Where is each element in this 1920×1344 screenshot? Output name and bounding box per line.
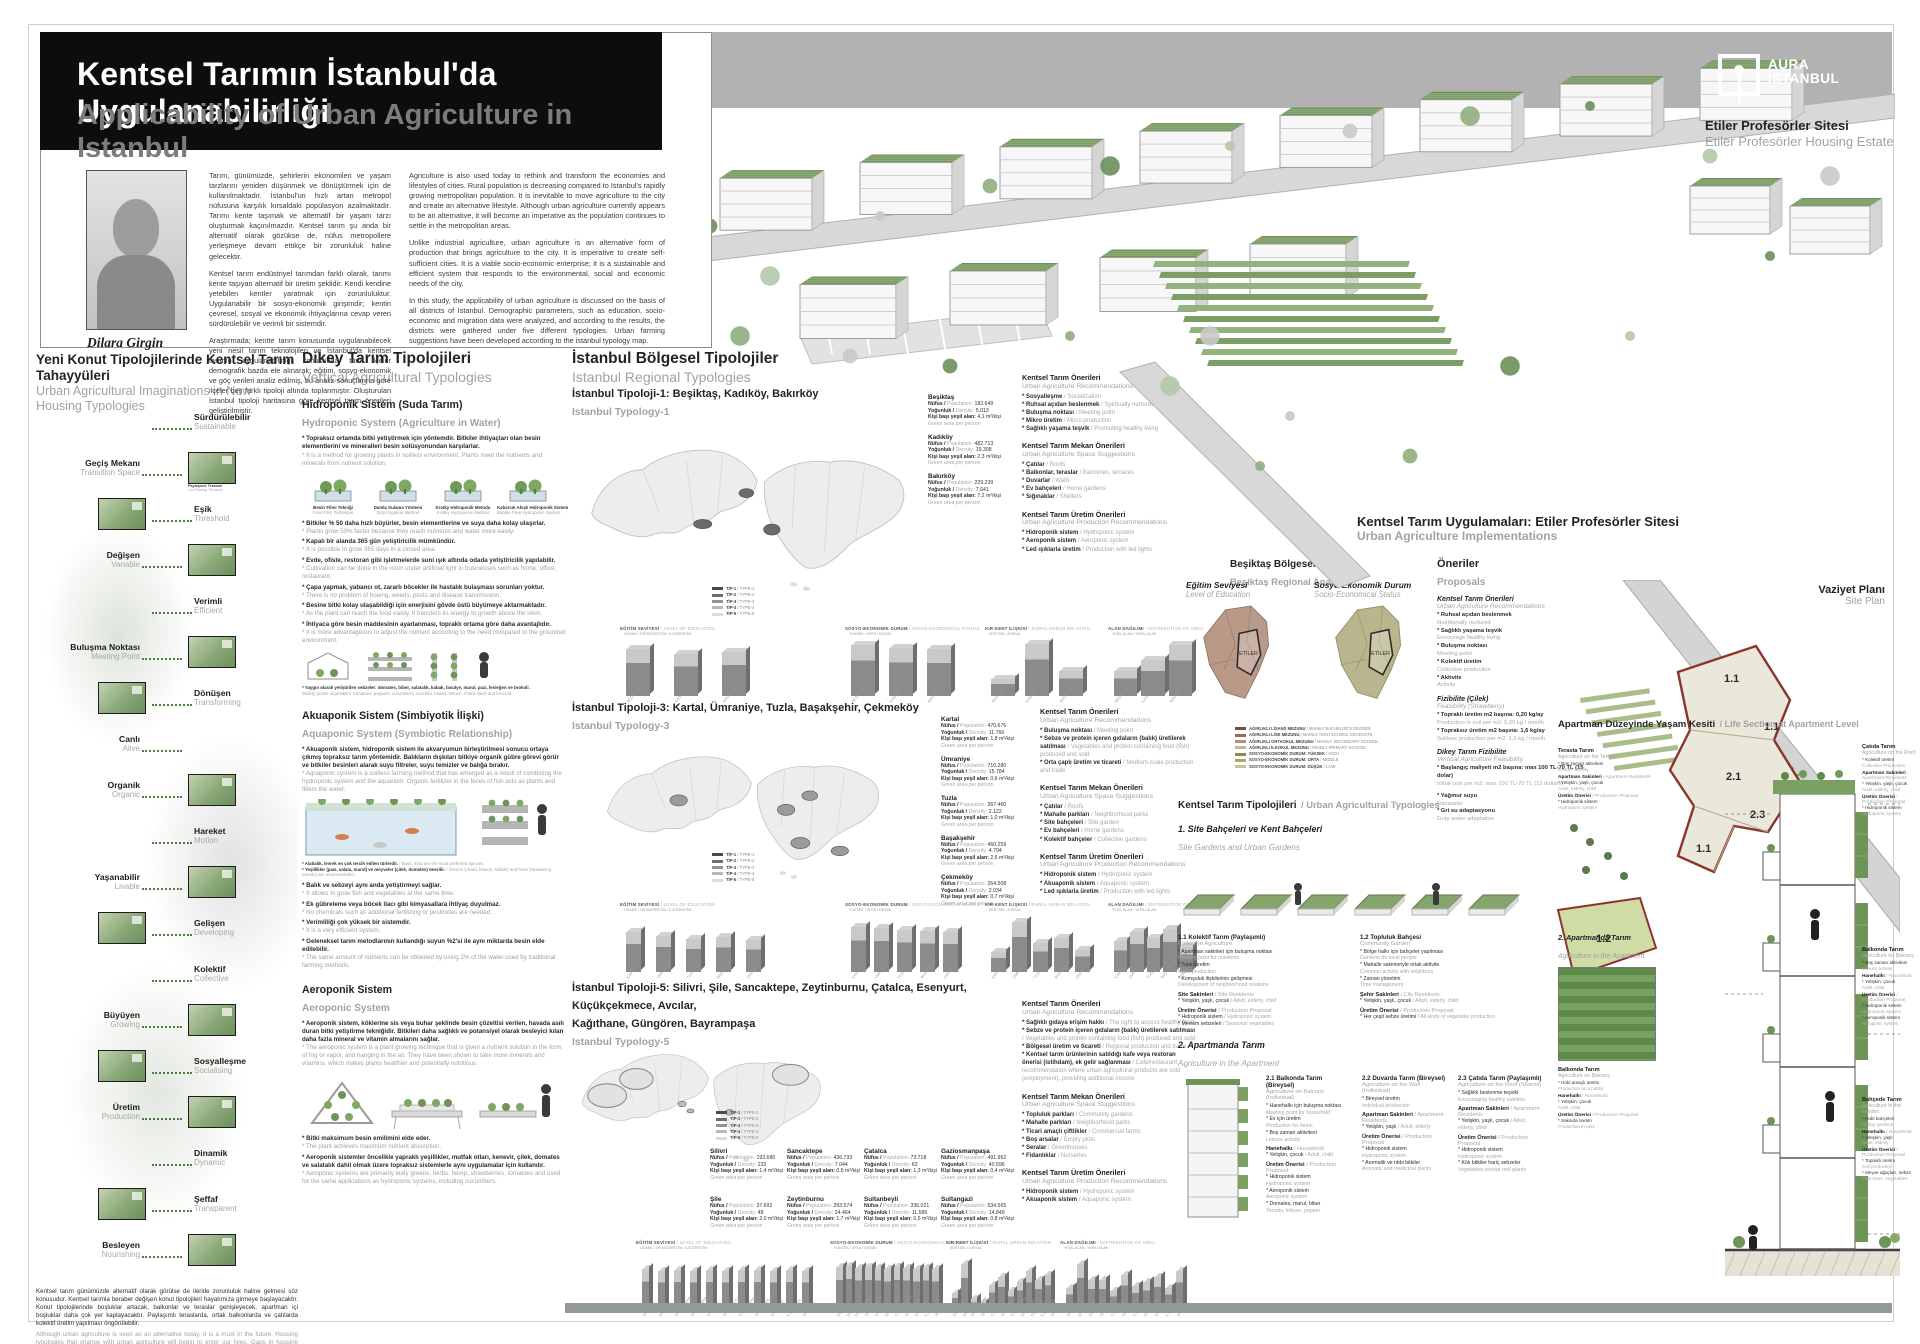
bottom-rule [565, 1303, 1892, 1313]
life-group-title-en: Agriculture on the Terrace [1558, 754, 1718, 760]
life-line: * Saksıda üretimProduction in pots [1558, 1118, 1718, 1130]
bar-label: K.ÇEKMECE [786, 1315, 802, 1319]
section1-title: 1. Site Bahçeleri ve Kent BahçeleriSite … [1178, 819, 1534, 855]
greenhouse-caption: * Yaygın olarak yetiştirilen sebzeler: d… [302, 685, 566, 696]
rec-item: * Hidroponik sistem / Hydroponic system [1022, 1188, 1197, 1196]
chart-bars [946, 1252, 1054, 1310]
chart-legend: YEŞİL ALAN / YAPILI ALAN [1112, 632, 1196, 636]
hydroponic-icon: Besin Filmi TekniğiFood Film Technique [302, 473, 364, 516]
hydroponic-icon: Damla Sulama YöntemiDrip Irrigation Meth… [367, 473, 429, 516]
block-item: * Toplu üretimMass production [1178, 962, 1346, 976]
chart-legend: YÜKSEK / ORTA / DÜŞÜK [849, 908, 973, 912]
logo-line2: İSTANBUL [1768, 71, 1839, 86]
block-title-en: Collective Agriculture [1178, 941, 1346, 947]
district-stat-block: SultangaziNüfus / Population: 534.565Yoğ… [941, 1196, 1027, 1229]
rec-item: * Akuaponik sistem / Aquaponic system [1040, 880, 1198, 888]
production-item: * Hidroponik sistemHydroponic system [1266, 1174, 1352, 1188]
bar-label: SULTANBEYLİ [884, 1315, 894, 1319]
detail-title: Kentsel Tarım Tipolojileri / Urban Agric… [1178, 795, 1534, 813]
life-line: * Meyve ağaçları, sebzeFruit trees, vege… [1862, 1170, 1916, 1182]
dotted-leader [152, 980, 192, 982]
life-group-title-en: Agriculture in the Garden [1862, 1103, 1916, 1115]
section2-blocks: 2.1 Balkonda Tarım (Bireysel)Agriculture… [1266, 1075, 1544, 1225]
typology-recommendations: Kentsel Tarım ÖnerileriUrban Agriculture… [1022, 374, 1197, 563]
rec-group: Kentsel Tarım Mekan ÖnerileriUrban Agric… [1040, 784, 1198, 843]
dotted-leader [142, 888, 182, 890]
bar-label: SİLİVRİ [952, 1315, 962, 1319]
life-label-group: Balkonda TarımAgriculture on Balcony* Bo… [1862, 947, 1916, 1027]
production-item: * Hidroponik sistemHydroponic system [1362, 1146, 1448, 1160]
concept-photo [98, 682, 146, 714]
map-legend-item: TİP-5 / TYPE-5 [712, 611, 754, 617]
rec-group: Kentsel Tarım Üretim ÖnerileriUrban Agri… [1022, 511, 1197, 554]
author-name: Dilara Girgin [87, 335, 163, 351]
district-stats: ÇatalcaNüfus / Population: 73.718Yoğunlu… [864, 1148, 950, 1188]
dotted-leader [152, 428, 192, 430]
bullet: * Geleneksel tarım metodlarının kullandı… [302, 938, 566, 970]
section2-title: 2. Apartmanda TarımAgriculture in the Ap… [1178, 1035, 1534, 1071]
district-stats: GaziosmanpaşaNüfus / Population: 491.962… [941, 1148, 1027, 1188]
rec-item: * Hidroponik sistem / Hydroponic system [1040, 871, 1198, 879]
implementations-title-tr: Kentsel Tarım Uygulamaları: Etiler Profe… [1357, 514, 1687, 529]
bar-label: SANCAKTEPE [674, 1315, 690, 1319]
aquaponic-caption: * Yeşillikler (pazı, salata, marul) ve m… [302, 867, 566, 878]
life-section-header: Apartman Düzeyinde Yaşam Kesiti / Life S… [1558, 714, 1908, 732]
chart-bar-labels: SİLİVRİŞİLESANCAKTEPEZEYTİNBURNUÇATALCAS… [1060, 1315, 1192, 1319]
concept-row: ŞeffafTransparent [36, 1186, 298, 1232]
rec-group-title-tr: Kentsel Tarım Mekan Önerileri [1022, 1093, 1197, 1102]
block-item: * Sağlıklı beslenme teşvikiEncouraging h… [1458, 1090, 1544, 1104]
intro-paragraph-en: In this study, the applicability of urba… [409, 296, 665, 346]
life-label-group: Balkonda TarımAgriculture on Balcony* Ho… [1558, 1067, 1718, 1130]
bar-label: ŞİLE [962, 1315, 970, 1319]
concept-label: DinamikDynamic [194, 1148, 298, 1167]
chart-title: EĞİTİM SEVİYESİ / LEVEL OF EDUCATION [636, 1240, 822, 1245]
rec-item: * Kentsel tarım ürünlerinin satıldığı ka… [1022, 1051, 1197, 1083]
hydroponic-icon: Kratky Hidroponik MetoduKratky Hydroponi… [432, 473, 494, 516]
bar-label: K.ÇEKMECE [924, 1315, 934, 1319]
dotted-leader [152, 934, 192, 936]
dotted-leader [152, 612, 192, 614]
life-line-header: Üretim Önerisi / Production Proposal [1862, 1148, 1916, 1158]
concept-photo [188, 866, 236, 898]
istanbul-typology-map [575, 424, 925, 606]
dotted-leader [152, 704, 192, 706]
bar-label: SULTANGAZİ [1020, 1315, 1030, 1319]
production-header: Üretim Önerisi / Production Proposal [1266, 1162, 1352, 1174]
section2-wrap: 2.1 Balkonda Tarım (Bireysel)Agriculture… [1178, 1075, 1534, 1225]
life-line: * Hidroponik sistemHydroponic system [1862, 1003, 1916, 1015]
production-item: * Aeroponik sistemAeroponic system [1266, 1188, 1352, 1202]
concept-photo [188, 774, 236, 806]
district-stat-block: ŞileNüfus / Population: 37.692Yoğunluk /… [710, 1196, 796, 1229]
concept-label: ÜretimProduction [36, 1102, 140, 1121]
block-title-en: Agriculture on Balcony (Individual) [1266, 1089, 1352, 1101]
bullet: * Bitkiler % 50 daha hızlı büyürler, bes… [302, 520, 566, 536]
district-stat-block: KadıköyNüfus / Population: 482.713Yoğunl… [928, 434, 1014, 467]
block-title-tr: 2.3 Çatıda Tarım (Paylaşımlı) [1458, 1075, 1544, 1082]
concept-row: DönüşenTransforming [36, 680, 298, 726]
intro-paragraph-en: Unlike industrial agriculture, urban agr… [409, 238, 665, 288]
map-legend: TİP-1 / TYPE-1TİP-2 / TYPE-2TİP-3 / TYPE… [712, 586, 754, 617]
life-label-group: Bahçede TarımAgriculture in the Garden* … [1862, 1097, 1916, 1183]
rec-item: * Boş arsalar / Empty plots [1022, 1136, 1197, 1144]
rec-item: * Sosyalleşme / Socialization [1022, 393, 1197, 401]
svg-text:ETİLER: ETİLER [1239, 650, 1258, 657]
concept-row: VerimliEfficient [36, 588, 298, 634]
district-stats: ZeytinburnuNüfus / Population: 293.574Yo… [787, 1196, 873, 1236]
chart-legend: LİSANS / ORTAÖĞRETİM / İLKÖĞRETİM [624, 908, 790, 912]
dotted-leader [152, 520, 192, 522]
chart-bars [1060, 1252, 1192, 1310]
rec-group-title-en: Urban Agriculture Recommendations [1040, 717, 1198, 725]
life-line: * Aeroponik sistemAeroponic system [1862, 1015, 1916, 1027]
intro-paragraph-tr: Tarım, günümüzde, şehirlerin ekonomileri… [209, 171, 391, 262]
bar-label: K.ÇEKMECE [1165, 1315, 1176, 1319]
concept-photo [188, 1234, 236, 1266]
rec-group: Kentsel Tarım Mekan ÖnerileriUrban Agric… [1022, 442, 1197, 501]
rec-group-title-en: Urban Agriculture Production Recommendat… [1040, 861, 1198, 869]
chart-group: EĞİTİM SEVİYESİ / LEVEL OF EDUCATIONLİSA… [620, 626, 790, 705]
block-title-en: Agriculture on the Wall (Individual) [1362, 1082, 1448, 1094]
residents-item: * Yetişkin, yaşlı, çocuk / Adult, elderl… [1360, 998, 1528, 1005]
production-item: * Domates, marul, biberTomato, lettuce, … [1266, 1201, 1352, 1215]
rec-item: * Aeroponik sistem / Aeroponic system [1022, 537, 1197, 545]
residents-header: Apartman Sakinleri / Apartment Residents [1458, 1106, 1544, 1118]
rec-item: * Ticari amaçlı çiftlikler / Commercial … [1022, 1128, 1197, 1136]
block-item: * Bireysel üretimIndividual production [1362, 1096, 1448, 1110]
dotted-leader [142, 658, 182, 660]
bar-label: ÇATALCA [1110, 1315, 1121, 1319]
rec-item: * Sebze ve protein içeren gıdaların (bal… [1040, 735, 1198, 759]
bar-label: G.OSMANPAŞA [738, 1315, 754, 1319]
map-legend: TİP-1 / TYPE-1TİP-2 / TYPE-2TİP-3 / TYPE… [712, 852, 754, 883]
life-line: * Boş zaman aktivitesiLeisure activity [1558, 761, 1718, 773]
production-item: * Mevsim sebzeleri / Seasonal vegetables [1178, 1021, 1346, 1028]
bar-label: TUZLA [1146, 977, 1160, 981]
residents-item: * Yetişkin, yaşlı / Adult, elderly [1362, 1124, 1448, 1131]
rec-group-title-tr: Kentsel Tarım Mekan Önerileri [1040, 784, 1198, 793]
spacer [1862, 827, 1916, 947]
rec-item: * Balkonlar, teraslar / Balconies, terra… [1022, 469, 1197, 477]
rec-item: * Mikro üretim / Micro production [1022, 417, 1197, 425]
life-line-header: Üretim Önerisi / Production Proposal [1862, 993, 1916, 1003]
district-stats: ŞileNüfus / Population: 37.692Yoğunluk /… [710, 1196, 796, 1236]
regional-title-en: Istanbul Regional Typologies [572, 369, 778, 386]
concept-row: YaşanabilirLivable [36, 864, 298, 910]
rec-group-title-en: Urban Agriculture Recommendations [1022, 383, 1197, 391]
bar-label: ÇATALCA [706, 1315, 722, 1319]
author-photo [86, 170, 187, 330]
district-stat-block: SancaktepeNüfus / Population: 436.733Yoğ… [787, 1148, 873, 1181]
bar-label: G.OSMANPAŞA [894, 1315, 904, 1319]
site-name-en: Etiler Profesörler Housing Estate [1705, 134, 1894, 150]
bullet: * Balık ve sebzeyi aynı anda yetiştirmey… [302, 882, 566, 898]
concept-label: BesleyenNourishing [36, 1240, 140, 1259]
system-name: Akuaponik Sistem (Simbiyotik İlişki)Aqua… [302, 706, 566, 742]
bullet: * Bitki maksimum besin emilimini elde ed… [302, 1135, 566, 1151]
life-line: * Yetişkin, çocukAdult, child [1558, 1099, 1718, 1111]
life-line: * Hobi amaçlı üretimProduction as a hobb… [1558, 1080, 1718, 1092]
bar-label: SULTANGAZİ [1143, 1315, 1154, 1319]
chart-legend: KENTSEL / KIRSAL [989, 908, 1097, 912]
analysis-legend-item: SOSYO-EKONOMİK DURUM: DÜŞÜK / LOW [1235, 764, 1425, 770]
concept-label: ŞeffafTransparent [194, 1194, 298, 1213]
implementations-header: Kentsel Tarım Uygulamaları: Etiler Profe… [1357, 514, 1687, 543]
bar-label: ESENYURT [770, 1315, 786, 1319]
bar-label: SULTANGAZİ [754, 1315, 770, 1319]
rec-group: Kentsel Tarım ÖnerileriUrban Agriculture… [1022, 374, 1197, 433]
logo-line1: AURA [1768, 57, 1809, 72]
dotted-leader [142, 1118, 182, 1120]
apartment-illustration [1178, 1075, 1256, 1225]
typology-block: 1.1 Kolektif Tarım (Paylaşımlı)Collectiv… [1178, 934, 1346, 1027]
bar-label: KADIKÖY [1141, 701, 1168, 705]
bar-label: ÇEKMEKÖY [1075, 977, 1096, 981]
bar-label: ÇATALCA [990, 1315, 1000, 1319]
bar-label: G.OSMANPAŞA [1132, 1315, 1143, 1319]
system-bullets: * Balık ve sebzeyi aynı anda yetiştirmey… [302, 882, 566, 970]
block-item: * Hanehalkı için buluşma noktasıMeeting … [1266, 1103, 1352, 1117]
concept-row: ÜretimProduction [36, 1094, 298, 1140]
concept-row: CanlıAlive [36, 726, 298, 772]
regional-section: İstanbul Bölgesel Tipolojiler Istanbul R… [572, 350, 778, 385]
chart-group: SOSYO-EKONOMİK DURUM / SOCIO-ECONOMICAL … [845, 902, 973, 981]
concept-row: Geçiş MekanıTransition SpacePaylaşımlı T… [36, 450, 298, 496]
intro-paragraph-tr: Araştırmada; kentte tarım konusunda uygu… [209, 336, 391, 417]
concept-label: VerimliEfficient [194, 596, 298, 615]
typology-block: 2.2 Duvarda Tarım (Bireysel)Agriculture … [1362, 1075, 1448, 1225]
concept-photo [188, 1004, 236, 1036]
concept-label: DeğişenVariable [36, 550, 140, 569]
rec-group-title-tr: Kentsel Tarım Önerileri [1022, 374, 1197, 383]
intro-paragraph-en: Agriculture is also used today to rethin… [409, 171, 665, 231]
life-line: * Hobi bahçeleriHobby gardens [1862, 1116, 1916, 1128]
poster-title-en: Applicability of Urban Agriculture in Is… [77, 99, 662, 165]
bar-label: BEŞİKTAŞ [1114, 701, 1141, 705]
chart-bar-labels: BEŞİKTAŞKADIKÖYBAKIRKÖY [1108, 701, 1196, 705]
rec-group-title-tr: Kentsel Tarım Üretim Önerileri [1022, 511, 1197, 520]
block-item: * Zaman yönetimiTime management [1360, 976, 1528, 990]
concept-row: DinamikDynamic [36, 1140, 298, 1186]
life-labels-right: Çatıda TarımAgriculture on the Roof* Kol… [1862, 744, 1916, 1192]
life-line-header: Apartman Sakinleri / Apartment Residents [1862, 771, 1916, 781]
bullet: * İhtiyaca göre besin maddesinin ayarlan… [302, 621, 566, 645]
district-stats: SultanbeyliNüfus / Population: 336.021Yo… [864, 1196, 950, 1236]
dotted-leader [142, 750, 182, 752]
chart-group: EĞİTİM SEVİYESİ / LEVEL OF EDUCATIONLİSA… [620, 902, 790, 981]
site-gardens-illustration [1178, 859, 1534, 929]
chart-title: ALAN DAĞILIMI / DISTRIBUTION OF AREA [1060, 1240, 1192, 1245]
concept-photo [188, 544, 236, 576]
bar-label: AVCILAR [802, 1315, 818, 1319]
dotted-leader [152, 842, 192, 844]
chart-bar-labels: SİLİVRİŞİLESANCAKTEPEZEYTİNBURNUÇATALCAS… [636, 1315, 822, 1319]
site-name-tr: Etiler Profesörler Sitesi [1705, 118, 1894, 134]
concept-row: Buluşma NoktasıMeeting Point [36, 634, 298, 680]
chart-legend: KENTSEL / KIRSAL [989, 632, 1097, 636]
chart-legend: YÜKSEK / ORTA / DÜŞÜK [849, 632, 973, 636]
concept-row: KolektifCollective [36, 956, 298, 1002]
title-block: Kentsel Tarımın İstanbul'da Uygulanabili… [40, 32, 662, 150]
bar-label: ESENYURT [914, 1315, 924, 1319]
rec-item: * Led ışıklarla üretim / Production with… [1040, 888, 1198, 896]
rec-item: * Çatılar / Roofs [1022, 461, 1197, 469]
chart-title: EĞİTİM SEVİYESİ / LEVEL OF EDUCATION [620, 902, 790, 907]
bar-label: SİLİVRİ [642, 1315, 658, 1319]
rec-group: Kentsel Tarım Üretim ÖnerileriUrban Agri… [1040, 853, 1198, 896]
rec-item: * Ev bahçeleri / Home gardens [1040, 827, 1198, 835]
concept-row: BüyüyenGrowing [36, 1002, 298, 1048]
implementations-title-en: Urban Agriculture Implementations [1357, 529, 1687, 543]
chart-group: KIR-KENT İLİŞKİSİ / RURAL-URBAN RELATION… [985, 902, 1097, 981]
bar-label: K.ÇEKMECE [1040, 1315, 1050, 1319]
concept-photo [98, 1188, 146, 1220]
bar-label: AVCILAR [1050, 1315, 1060, 1319]
system-description: * Topraksız ortamda bitki yetiştirmek iç… [302, 435, 566, 467]
imaginations-section: Yeni Konut Tipolojilerinde Kentsel Tarım… [36, 352, 298, 1340]
typology-block: 2.3 Çatıda Tarım (Paylaşımlı)Agriculture… [1458, 1075, 1544, 1225]
rec-item: * Kolektif bahçeler / Collective gardens [1040, 836, 1198, 844]
intro-text-english: Agriculture is also used today to rethin… [409, 171, 665, 353]
rec-group-title-tr: Kentsel Tarım Mekan Önerileri [1022, 442, 1197, 451]
bullet: * Aeroponik sistemler öncelikle yapraklı… [302, 1154, 566, 1186]
dotted-leader [142, 1026, 182, 1028]
chart-bar-labels: SİLİVRİŞİLESANCAKTEPEZEYTİNBURNUÇATALCAS… [946, 1315, 1054, 1319]
system-name: Aeroponik SistemAeroponic System [302, 980, 566, 1016]
rec-item: * Led ışıklarla üretim / Production with… [1022, 546, 1197, 554]
typology-block: 2.1 Balkonda Tarım (Bireysel)Agriculture… [1266, 1075, 1352, 1225]
chart-title: ALAN DAĞILIMI / DISTRIBUTION OF AREA [1108, 626, 1196, 631]
section1-blocks: 1.1 Kolektif Tarım (Paylaşımlı)Collectiv… [1178, 934, 1534, 1027]
district-stat-block: SultanbeyliNüfus / Population: 336.021Yo… [864, 1196, 950, 1229]
rec-group-title-tr: Kentsel Tarım Önerileri [1022, 1000, 1197, 1009]
bullet: * Verimliliği çok yüksek bir sistemdir.*… [302, 919, 566, 935]
concept-label: DönüşenTransforming [194, 688, 298, 707]
bar-label: SANCAKTEPE [854, 1315, 864, 1319]
life-line: * Yetişkin, yaşlı, çocukAdult, elderly, … [1862, 781, 1916, 793]
district-stat-block: KartalNüfus / Population: 470.676Yoğunlu… [941, 716, 1027, 749]
rec-group-title-en: Urban Agriculture Recommendations [1022, 1009, 1197, 1017]
intro-text-turkish: Tarım, günümüzde, şehirlerin ekonomileri… [209, 171, 391, 423]
dotted-leader [152, 1210, 192, 1212]
spacer [1862, 1037, 1916, 1097]
district-stat-block: ÜmraniyeNüfus / Population: 710.280Yoğun… [941, 756, 1027, 789]
rec-item: * Sığınaklar / Shelters [1022, 493, 1197, 501]
bar-label: ZEYTİNBURNU [980, 1315, 990, 1319]
analysis-legend: AĞIRLIKLI LİSANS MEZUNU / MAINLY BACHELO… [1235, 726, 1425, 770]
chart-title: KIR-KENT İLİŞKİSİ / RURAL-URBAN RELATION [946, 1240, 1054, 1245]
map-legend: TİP-1 / TYPE-1TİP-2 / TYPE-2TİP-3 / TYPE… [716, 1110, 758, 1141]
district-stat-block: BaşakşehirNüfus / Population: 460.259Yoğ… [941, 835, 1027, 868]
intro-paragraph-tr: Kentsel tarım endüstriyel tarımdan farkl… [209, 269, 391, 329]
concept-photo [188, 636, 236, 668]
rec-item: * Sağlıklı gıdaya erişim hakkı / The rig… [1022, 1019, 1197, 1027]
chart-title: EĞİTİM SEVİYESİ / LEVEL OF EDUCATION [620, 626, 790, 631]
life-line: * Yetişkin, yaşlı, çocukAdult, elderly, … [1558, 780, 1718, 792]
block-item: * Komşuluk ilişkilerinin gelişmesiDevelo… [1178, 976, 1346, 990]
hydroponic-icon: Kabarcık Akışlı Hidroponik SistemBubble … [497, 473, 559, 516]
district-stat-block: ZeytinburnuNüfus / Population: 293.574Yo… [787, 1196, 873, 1229]
rec-item: * Ev bahçeleri / Home gardens [1022, 485, 1197, 493]
chart-legend: YÜKSEK / ORTA / DÜŞÜK [834, 1246, 942, 1250]
block-item: * Bölge halkı için bahçeler yapılmasıGar… [1360, 949, 1528, 963]
rec-item: * Hidroponik sistem / Hydroponic system [1022, 529, 1197, 537]
district-stat-block: BakırköyNüfus / Population: 229.239Yoğun… [928, 473, 1014, 506]
life-line: * Hidroponik sistemHydroponic system [1558, 799, 1718, 811]
system-bullets: * Bitkiler % 50 daha hızlı büyürler, bes… [302, 520, 566, 645]
concept-photo [98, 1050, 146, 1082]
rec-item: * Çatılar / Roofs [1040, 803, 1198, 811]
block-item: * Boş zaman aktivitesiLeisure activity [1266, 1130, 1352, 1144]
chart-legend: LİSANS / ORTAÖĞRETİM / İLKÖĞRETİM [640, 1246, 822, 1250]
bar-label: ESENYURT [1030, 1315, 1040, 1319]
concept-ladder: SürdürülebilirSustainableGeçiş MekanıTra… [36, 404, 298, 1276]
district-stats: SancaktepeNüfus / Population: 436.733Yoğ… [787, 1148, 873, 1188]
chart-title: KIR-KENT İLİŞKİSİ / RURAL-URBAN RELATION [985, 626, 1097, 631]
rec-item: * Buluşma noktası / Meeting point [1022, 409, 1197, 417]
bar-label: BAKIRKÖY [1059, 701, 1093, 705]
system-bullets: * Bitki maksimum besin emilimini elde ed… [302, 1135, 566, 1186]
rec-group-title-tr: Kentsel Tarım Üretim Önerileri [1040, 853, 1198, 862]
district-stat-block: ÇatalcaNüfus / Population: 73.718Yoğunlu… [864, 1148, 950, 1181]
greenhouse-icons [302, 649, 566, 683]
block-item: * Apartman sakinleri için buluşma noktas… [1178, 949, 1346, 963]
rec-item: * Akuaponik sistem / Aquaponic system [1022, 1196, 1197, 1204]
bar-label: ZEYTİNBURNU [864, 1315, 874, 1319]
rec-group: Kentsel Tarım ÖnerileriUrban Agriculture… [1040, 708, 1198, 775]
typology-recommendations: Kentsel Tarım ÖnerileriUrban Agriculture… [1040, 708, 1198, 905]
concept-row: BesleyenNourishing [36, 1232, 298, 1278]
concept-label: KolektifCollective [194, 964, 298, 983]
bar-label: TUZLA [1033, 977, 1054, 981]
rec-item: * Mahalle parkları / Neighborhood parks [1040, 811, 1198, 819]
block-title-tr: 1.1 Kolektif Tarım (Paylaşımlı) [1178, 934, 1346, 941]
residents-item: * Yetişkin, çocuk / Adult, child [1266, 1152, 1352, 1159]
bullet: * Besine bitki kolay ulaşabildiği için e… [302, 602, 566, 618]
life-group-title-en: Agriculture on Balcony [1862, 953, 1916, 959]
block-title-tr: 2.2 Duvarda Tarım (Bireysel) [1362, 1075, 1448, 1082]
svg-text:ETİLER: ETİLER [1371, 650, 1390, 657]
production-item: * Hidroponik sistem / Hydroponic system [1178, 1014, 1346, 1021]
production-item: * Aromatik ve tıbbi bitkilerAromatic and… [1362, 1160, 1448, 1174]
rec-item: * Sağlıklı yaşama teşvik / Promoting hea… [1022, 425, 1197, 433]
bar-label: ŞİLE [1077, 1315, 1088, 1319]
aura-istanbul-logo: AURA İSTANBUL [1718, 54, 1839, 96]
residents-header: Apartman Sakinleri / Apartment Residents [1362, 1112, 1448, 1124]
map-legend-item: TİP-5 / TYPE-5 [712, 877, 754, 883]
bullet: * Evde, ofiste, restoran gibi işletmeler… [302, 557, 566, 581]
rec-group-title-en: Urban Agriculture Space Suggestions [1022, 451, 1197, 459]
district-stat-block: TuzlaNüfus / Population: 267.460Yoğunluk… [941, 795, 1027, 828]
life-labels-left: Terasta TarımAgriculture on the Terrace*… [1558, 748, 1718, 1140]
rec-group-title-tr: Kentsel Tarım Önerileri [1040, 708, 1198, 717]
bar-label: SULTANBEYLİ [1000, 1315, 1010, 1319]
map-legend-item: TİP-5 / TYPE-5 [716, 1135, 758, 1141]
typology-recommendations: Kentsel Tarım ÖnerileriUrban Agriculture… [1022, 1000, 1197, 1213]
rec-group: Kentsel Tarım Üretim ÖnerileriUrban Agri… [1022, 1169, 1197, 1204]
aeroponic-illustration [302, 1073, 566, 1131]
concept-label: BüyüyenGrowing [36, 1010, 140, 1029]
rec-item: * Duvarlar / Walls [1022, 477, 1197, 485]
concept-label: Geçiş MekanıTransition Space [36, 458, 140, 477]
vertical-typologies-section: Dikey Tarım Tipolojileri Vertical Agricu… [302, 350, 566, 1342]
bar-label: KARTAL [1114, 977, 1128, 981]
concept-row: GelişenDeveloping [36, 910, 298, 956]
rec-item: * Ruhsal açıdan beslenmek / Spiritually … [1022, 401, 1197, 409]
concept-label: EşikThreshold [194, 504, 298, 523]
life-line: * Yetişkin, çocukAdult, child [1862, 979, 1916, 991]
